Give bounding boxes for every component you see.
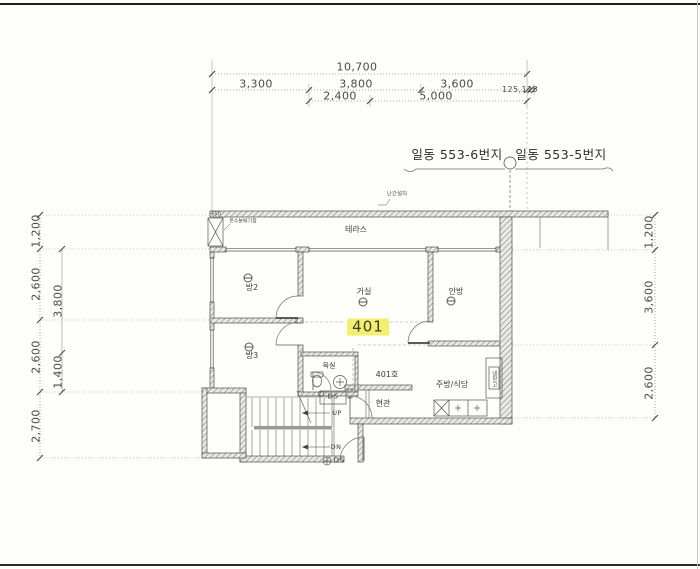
- dimension-lines: [37, 60, 658, 461]
- room-label-master: 안방: [449, 288, 464, 296]
- dim-top-total: 10,700: [337, 62, 378, 73]
- dim-top-seg-2: 3,800: [339, 79, 373, 90]
- note-dim-650: 650: [211, 213, 221, 218]
- room-label-bath: 욕실: [323, 363, 336, 370]
- room-label-room2: 방2: [246, 284, 258, 292]
- unit-door-label: 401호: [376, 371, 399, 379]
- lot-label-553-6: 일동 553-6번지: [411, 149, 502, 162]
- lot-label-553-5: 일동 553-5번지: [515, 149, 606, 162]
- finish-symbol-living: [359, 298, 368, 307]
- dim-left-3: 2,600: [31, 340, 42, 374]
- dim-left-inner-1: 3,800: [53, 284, 64, 318]
- unit-number-highlight: 401: [347, 319, 389, 336]
- stairs-up-label: UP: [332, 410, 341, 417]
- dim-left-2: 2,600: [31, 267, 42, 301]
- dim-right-2: 3,600: [644, 280, 655, 314]
- finish-symbol-master: [447, 297, 456, 306]
- dim-top-sub-2: 5,000: [419, 91, 453, 102]
- dim-left-4: 2,700: [31, 409, 42, 443]
- room-label-entrance: 현관: [376, 400, 391, 408]
- dim-right-3: 2,600: [644, 366, 655, 400]
- duct-label-top: DS: [328, 394, 339, 401]
- dim-top-sub-1: 2,400: [323, 91, 357, 102]
- stairs: [246, 390, 369, 465]
- dim-top-edge: 125,125: [502, 86, 538, 94]
- dim-top-seg-3: 3,600: [440, 79, 474, 90]
- stairs-down-label: DN: [331, 444, 342, 451]
- floorplan-sheet: 10,700 3,300 3,800 3,600 125,125 2,400 5…: [0, 0, 700, 569]
- finish-symbol-room3: [245, 343, 254, 352]
- room-label-kitchen: 주방/식당: [436, 381, 468, 389]
- duct-label-bottom: DS: [334, 458, 345, 465]
- room-label-terrace: 테라스: [345, 226, 367, 234]
- dim-left-inner-2: 1,400: [53, 355, 64, 389]
- fridge-label: 냉장고: [490, 371, 496, 388]
- note-hot-water-box: 온수분배기함: [229, 220, 257, 225]
- dim-top-seg-1: 3,300: [239, 79, 273, 90]
- dim-right-1: 1,200: [644, 215, 655, 249]
- finish-symbol-room2: [244, 274, 253, 283]
- dim-left-1: 1,200: [31, 214, 42, 248]
- room-label-room3: 방3: [246, 352, 258, 360]
- room-label-living: 거실: [357, 288, 372, 296]
- note-railing: 난간설치: [387, 192, 407, 198]
